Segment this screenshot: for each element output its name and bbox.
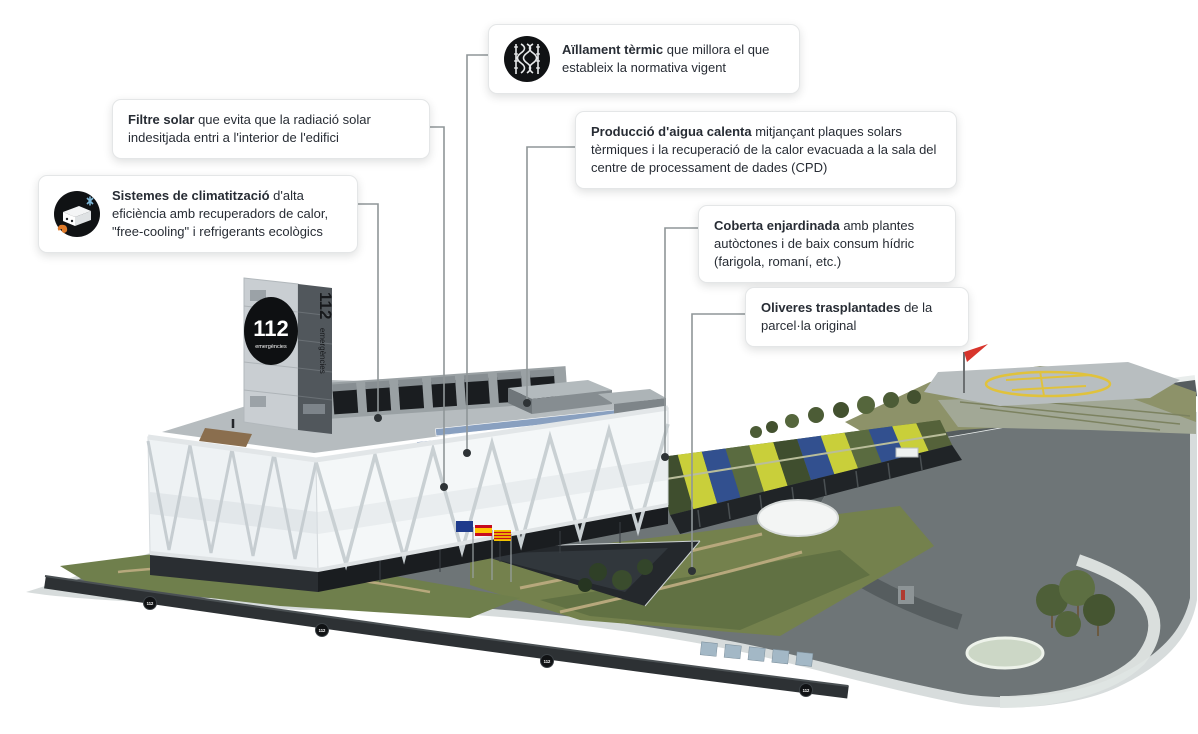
infographic-canvas: 112 112 112 112 [0,0,1198,734]
round-canopy [758,500,838,536]
spain-flag [475,525,492,536]
svg-text:112: 112 [147,601,154,606]
callout-coberta-enjardinada: Coberta enjardinada amb plantes autòcton… [698,205,956,283]
wall-badge-112: 112 [541,655,554,668]
callout-lead: Producció d'aigua calenta [591,124,752,139]
svg-text:112: 112 [544,659,551,664]
svg-text:112: 112 [803,688,810,693]
callout-lead: Coberta enjardinada [714,218,840,233]
tower-logo-number: 112 [253,316,289,341]
insulation-icon [504,36,550,82]
wall-badge-112: 112 [800,684,813,697]
callout-oliveres-trasplantades: Oliveres trasplantades de la parcel·la o… [745,287,969,347]
svg-text:112: 112 [319,628,326,633]
callout-filtre-solar: Filtre solar que evita que la radiació s… [112,99,430,159]
hill-service-structure [896,448,918,457]
callout-text: Aïllament tèrmic que millora el que esta… [562,41,784,77]
leader-produccio [527,147,575,402]
callout-text: Coberta enjardinada amb plantes autòcton… [714,217,940,271]
callout-text: Oliveres trasplantades de la parcel·la o… [761,299,953,335]
leader-coberta [665,228,698,456]
olive-tree [578,578,592,592]
callout-lead: Sistemes de climatització [112,188,270,203]
climate-unit-icon [54,191,100,237]
callout-produccio-aigua-calenta: Producció d'aigua calenta mitjançant pla… [575,111,957,189]
callout-lead: Oliveres trasplantades [761,300,900,315]
callout-text: Filtre solar que evita que la radiació s… [128,111,414,147]
callout-lead: Aïllament tèrmic [562,42,663,57]
wall-badge-112: 112 [144,597,157,610]
entrance-booth [898,586,914,604]
callout-aillament-termic: Aïllament tèrmic que millora el que esta… [488,24,800,94]
tower-112: 112 emergències 112 emergències [244,278,335,434]
pavement-circle [967,638,1043,668]
tower-side-label: 112 emergències [316,292,335,374]
callout-sistemes-climatitzacio: Sistemes de climatització d'alta eficièn… [38,175,358,253]
windsock-flag [964,344,988,362]
callout-text: Producció d'aigua calenta mitjançant pla… [591,123,941,177]
olive-tree [637,559,653,575]
olive-tree [612,570,632,590]
olive-tree [589,563,607,581]
tower-logo-caption: emergències [255,344,287,350]
callout-text: Sistemes de climatització d'alta eficièn… [112,187,342,241]
eu-flag [456,521,473,532]
senyera-flag [494,530,511,541]
callout-lead: Filtre solar [128,112,194,127]
wall-badge-112: 112 [316,624,329,637]
